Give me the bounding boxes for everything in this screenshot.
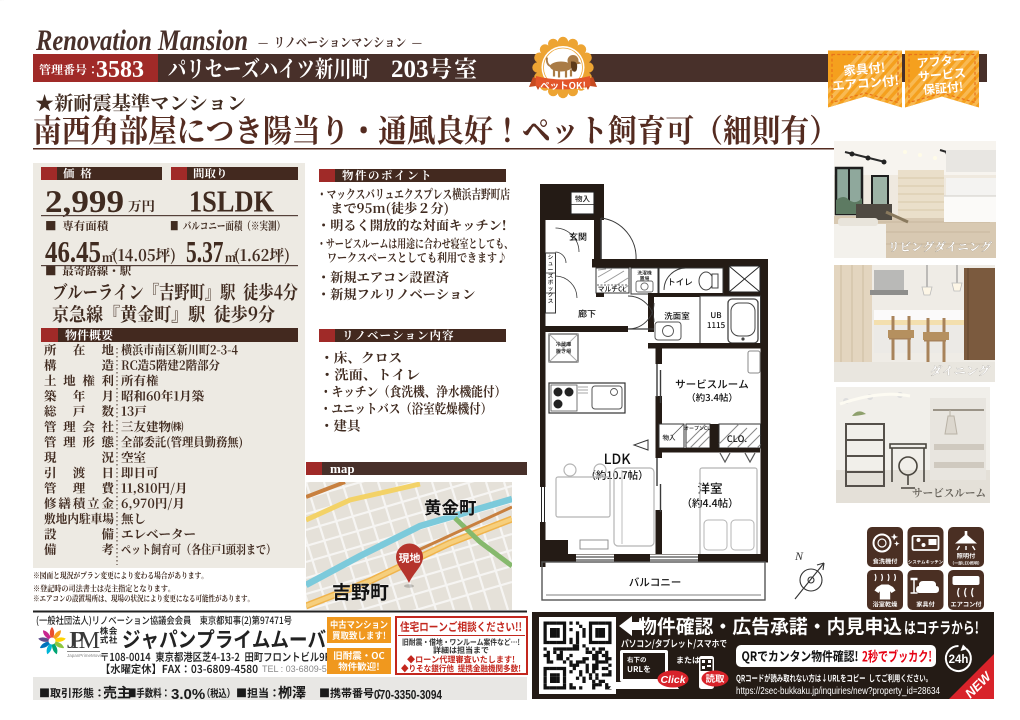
svg-text:1SLDK: 1SLDK [189, 185, 274, 219]
svg-text:5.37: 5.37 [186, 234, 224, 269]
svg-text:N: N [794, 549, 804, 563]
svg-text:Click: Click [660, 674, 686, 686]
svg-text:3583: 3583 [96, 57, 144, 83]
svg-text:3.0%: 3.0% [171, 686, 205, 703]
svg-text:https://2sec-bukkaku.jp/inquir: https://2sec-bukkaku.jp/inquiries/new?pr… [736, 685, 940, 697]
svg-text:203: 203 [391, 56, 429, 83]
svg-text:070-3350-3094: 070-3350-3094 [374, 688, 442, 702]
svg-text:2,999: 2,999 [45, 184, 124, 219]
svg-text:Renovation Mansion: Renovation Mansion [35, 24, 248, 57]
svg-text:24h: 24h [949, 654, 969, 666]
svg-text:46.45: 46.45 [45, 234, 101, 269]
svg-text:JPM: JPM [67, 628, 100, 654]
svg-text:JapanPrimeMover: JapanPrimeMover [67, 653, 104, 658]
svg-text:map: map [330, 461, 355, 476]
